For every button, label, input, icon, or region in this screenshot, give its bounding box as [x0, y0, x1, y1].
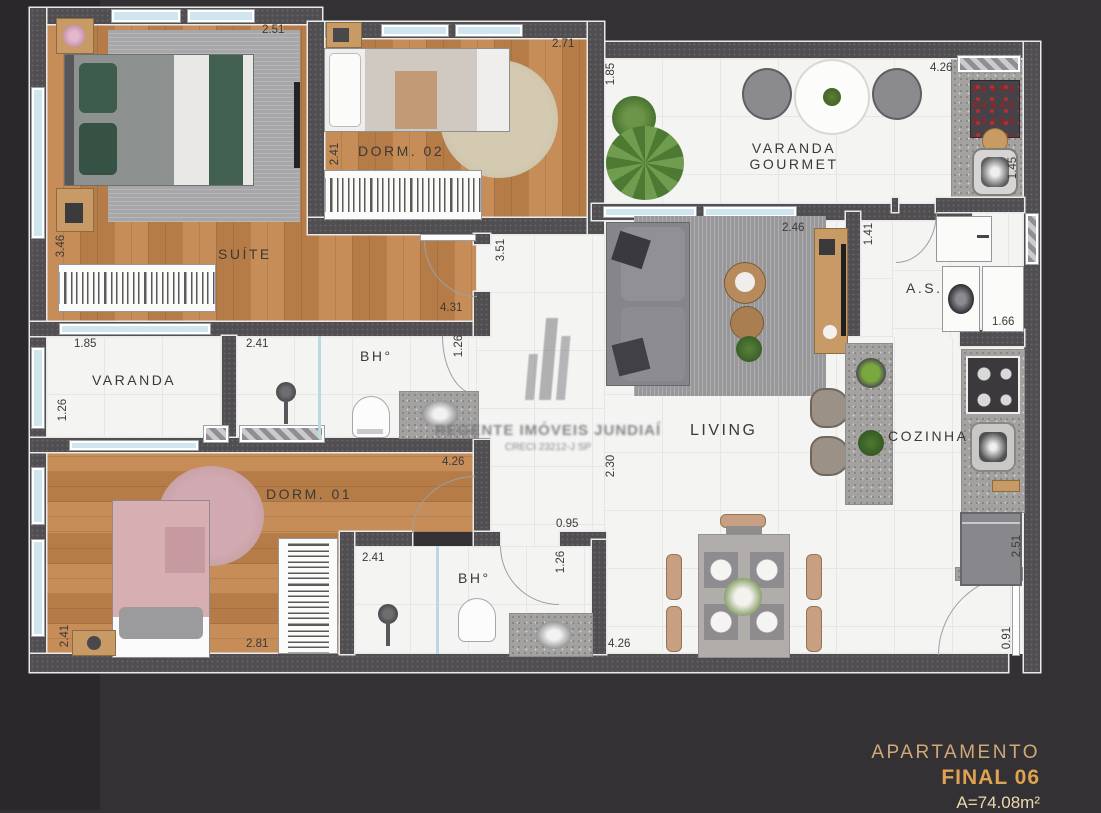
dim-label: 1.85 [74, 338, 96, 350]
balcony-chair [872, 68, 922, 120]
dim-label: 2.41 [362, 552, 384, 564]
room-label-varanda: VARANDA [92, 372, 176, 388]
lamp [87, 636, 101, 650]
wall-right [1024, 42, 1040, 672]
counter-stool [810, 436, 850, 476]
bed-pillow [79, 63, 117, 113]
toilet-tank [357, 429, 383, 434]
fridge-gap [962, 522, 1020, 524]
sink-basin [981, 157, 1009, 187]
bed-headboard [65, 55, 74, 185]
wall-bath2-right [592, 540, 606, 654]
dim-label: 2.41 [246, 338, 268, 350]
dim-label: 1.26 [57, 399, 69, 421]
bath-sink [536, 621, 572, 649]
washer-door [948, 284, 974, 314]
bed-throw [209, 55, 243, 185]
room-label-living: LIVING [690, 422, 757, 440]
dim-label: 3.46 [55, 235, 67, 257]
decor-frame [819, 239, 835, 255]
wall-service-top-a [892, 198, 898, 212]
dim-label: 1.26 [453, 335, 465, 357]
title-final: FINAL 06 [871, 766, 1040, 790]
balcony-chair [742, 68, 792, 120]
window [32, 468, 44, 524]
dim-label: 0.95 [556, 518, 578, 530]
dim-label: 1.41 [863, 223, 875, 245]
bed-pillow [119, 607, 203, 639]
bed-pillow [79, 123, 117, 175]
suite-wardrobe [58, 264, 216, 312]
tank-faucet [977, 235, 989, 238]
toilet [352, 396, 390, 438]
room-label-line: GOURMET [712, 156, 876, 172]
dim-label: 0.91 [1001, 627, 1013, 649]
wall-bath2-top-b [474, 532, 500, 546]
centerpiece-plant [823, 88, 841, 106]
bed-throw [395, 71, 437, 129]
title-block: APARTAMENTO FINAL 06 A=74.08m² [871, 742, 1040, 813]
dim-label: 3.51 [495, 239, 507, 261]
window [382, 25, 448, 36]
logo-bar [539, 318, 558, 400]
dim-label: 1.85 [605, 63, 617, 85]
dim-label: 2.81 [246, 638, 268, 650]
vent-window [1026, 214, 1038, 264]
shower-stem [386, 620, 390, 646]
window [456, 25, 522, 36]
dim-label: 1.26 [555, 551, 567, 573]
title-area: A=74.08m² [871, 793, 1040, 813]
plant-palm [606, 126, 684, 200]
floor-plan: SUÍTE DORM. 02 VARANDA GOURMET A.S. LIVI… [0, 0, 1101, 810]
wall-dorm02-right [588, 22, 604, 234]
room-label-suite: SUÍTE [218, 246, 272, 262]
sofa [606, 222, 690, 386]
dorm02-nightstand [326, 22, 362, 48]
dim-label: 2.71 [552, 38, 574, 50]
wall-dorm01-right [474, 440, 490, 546]
counter-stool [810, 388, 850, 428]
dim-label: 2.51 [262, 24, 284, 36]
room-label-bath2: BH° [458, 570, 491, 586]
dim-label: 2.51 [1011, 535, 1023, 557]
toilet [458, 598, 496, 642]
window [188, 10, 254, 22]
wall-hall-suite-b [474, 292, 490, 336]
window [60, 324, 210, 334]
tv [841, 244, 846, 336]
dining-chair [806, 606, 822, 652]
dim-label: 1.66 [992, 316, 1014, 328]
wall-bath2-left [340, 532, 354, 654]
dim-label: 2.30 [605, 455, 617, 477]
flower-centerpiece [724, 578, 762, 616]
shower-stem [284, 398, 288, 424]
dining-chair [666, 554, 682, 600]
vent-window [958, 56, 1020, 72]
dorm01-nightstand [72, 630, 116, 656]
cooktop [966, 356, 1020, 414]
window [32, 540, 44, 636]
window [70, 441, 198, 450]
window [112, 10, 180, 22]
dim-label: 4.26 [930, 62, 952, 74]
balcony-table [796, 61, 868, 133]
decor-dish [823, 325, 837, 339]
wall-service-top-b [936, 198, 1024, 212]
wall-dorm02-bottom [308, 218, 604, 234]
washing-machine [942, 266, 980, 332]
dining-chair [806, 554, 822, 600]
shower-glass [318, 336, 321, 438]
wall-service-bottom [960, 330, 1024, 346]
dining-chair [666, 606, 682, 652]
wall-cabinet-back [846, 212, 860, 336]
room-label-varanda-gourmet: VARANDA GOURMET [712, 140, 876, 172]
dorm02-bed [324, 48, 510, 132]
shower-glass [436, 546, 439, 654]
watermark-company: REGENTE IMÓVEIS JUNDIAÍ [428, 422, 668, 439]
watermark-creci: CRECI 23212-J SP [468, 442, 628, 453]
vent-window [204, 426, 228, 442]
dim-label: 2.41 [59, 625, 71, 647]
dorm01-bed [112, 500, 210, 658]
dim-label: 4.31 [440, 302, 462, 314]
room-label-dorm02: DORM. 02 [358, 143, 444, 159]
wall-suite-dorm02 [308, 22, 324, 234]
room-label-kitchen: COZINHA [888, 428, 969, 444]
flower-vase [63, 25, 85, 47]
logo-bar [525, 354, 538, 400]
room-label-line: VARANDA [712, 140, 876, 156]
kitchen-sink [970, 422, 1016, 472]
watermark-logo [515, 310, 595, 420]
room-label-bath1: BH° [360, 348, 393, 364]
bed-pillow [329, 53, 361, 127]
tray [735, 272, 755, 292]
suite-nightstand [56, 188, 94, 232]
logo-bar [556, 336, 571, 400]
decor-frame [65, 203, 83, 223]
plant [858, 430, 884, 456]
sink-basin [979, 432, 1007, 462]
dim-label: 2.41 [329, 143, 341, 165]
bed-throw [165, 527, 205, 573]
wall-varanda-bath1 [222, 336, 236, 438]
room-label-dorm01: DORM. 01 [266, 486, 352, 502]
room-label-service: A.S. [906, 280, 942, 296]
coffee-table [724, 262, 766, 304]
vent-window [240, 426, 324, 442]
dorm02-wardrobe [324, 170, 482, 220]
window [32, 348, 44, 428]
dorm01-wardrobe [278, 538, 338, 654]
dim-label: 1.45 [1007, 157, 1019, 179]
decor-items [333, 28, 349, 42]
dim-label: 4.26 [442, 456, 464, 468]
window [32, 88, 44, 238]
title-apartamento: APARTAMENTO [871, 742, 1040, 764]
dim-label: 2.46 [782, 222, 804, 234]
suite-tv [294, 82, 300, 168]
cutting-board [992, 480, 1020, 492]
dim-label: 4.26 [608, 638, 630, 650]
suite-bed [64, 54, 254, 186]
bath2-vanity [510, 614, 592, 656]
plant [736, 336, 762, 362]
coffee-table [730, 306, 764, 340]
fruit-bowl [856, 358, 886, 388]
suite-nightstand [56, 18, 94, 54]
laundry-tank [936, 216, 992, 262]
